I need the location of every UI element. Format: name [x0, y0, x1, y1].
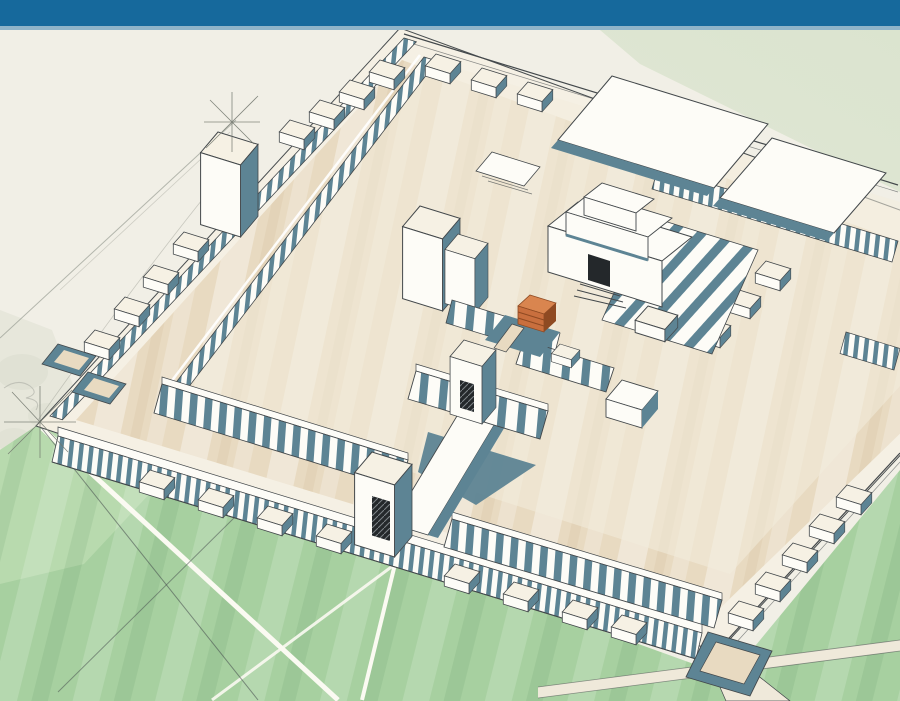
header-bar	[0, 0, 900, 26]
inner-south-gate	[450, 340, 496, 424]
illustration-canvas	[0, 30, 900, 701]
northwest-corner-tower	[201, 132, 258, 237]
temple-complex-illustration	[0, 30, 900, 701]
page	[0, 0, 900, 701]
